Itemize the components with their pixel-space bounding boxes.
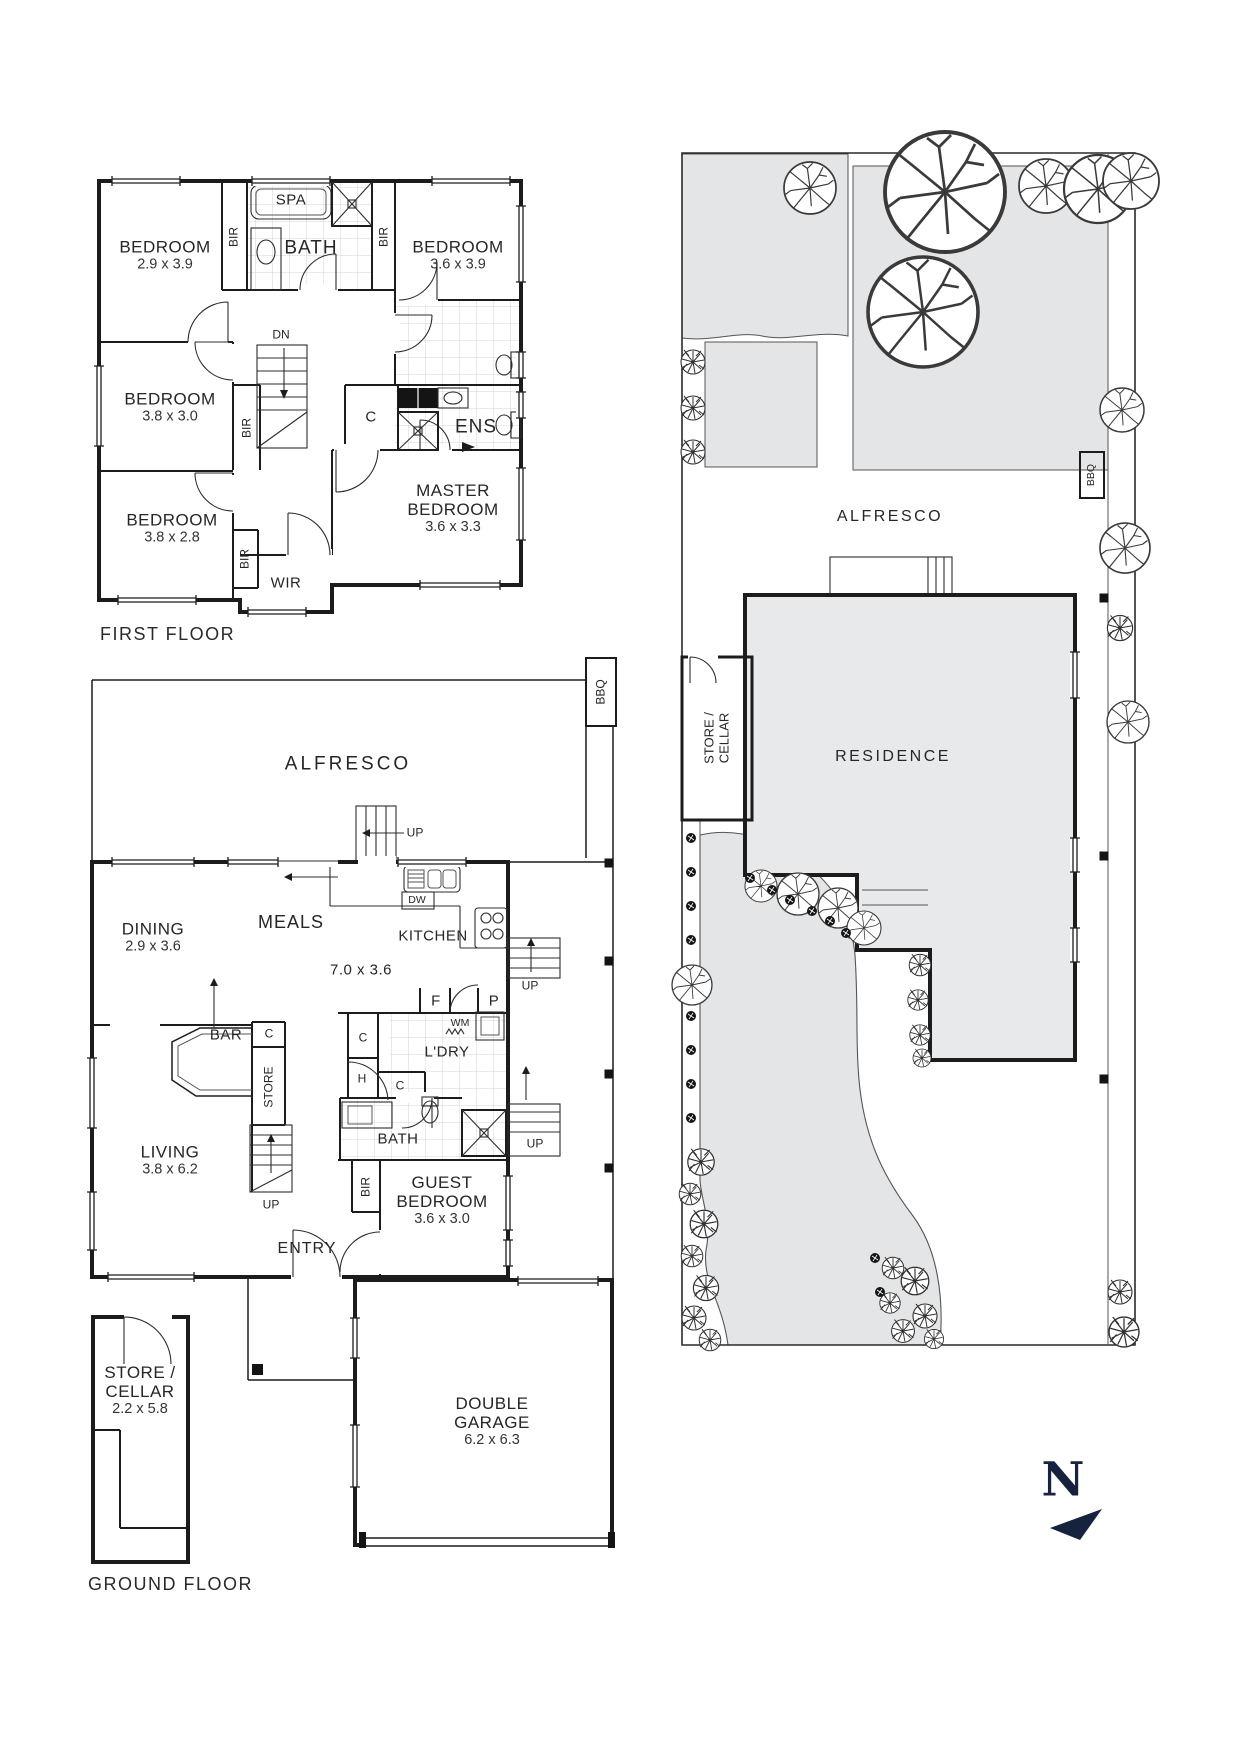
label-gf-entry: ENTRY (278, 1240, 337, 1258)
label-site-alfresco: ALFRESCO (837, 508, 943, 526)
label-gf-kitchen: KITCHEN (398, 929, 467, 946)
label-gf-alfresco: ALFRESCO (285, 753, 411, 774)
label-ff-closet: C (365, 410, 376, 427)
label-ff-wir: WIR (271, 576, 302, 593)
label-gf-bbq: BBQ (594, 679, 607, 704)
label-ff-master: MASTER BEDROOM 3.6 x 3.3 (407, 481, 498, 535)
label-ff-bath: BATH (284, 237, 337, 258)
label-gf-guest: GUEST BEDROOM 3.6 x 3.0 (396, 1173, 487, 1227)
label-gf-garage: DOUBLE GARAGE 6.2 x 6.3 (454, 1394, 530, 1448)
label-gf-wm: WM (451, 1018, 470, 1030)
label-gf-up-stairs: UP (263, 1198, 280, 1211)
label-ff-bedroom4: BEDROOM 3.8 x 2.8 (126, 510, 217, 545)
first-floor-title: FIRST FLOOR (100, 624, 235, 644)
label-gf-up-alfresco: UP (407, 826, 424, 839)
north-label: N (1042, 1453, 1085, 1508)
label-gf-dw: DW (408, 895, 426, 907)
label-gf-meals: MEALS (258, 912, 324, 932)
label-gf-bath: BATH (378, 1132, 419, 1149)
label-ff-bir-4: BIR (238, 549, 251, 569)
label-gf-closet-1: C (359, 1031, 368, 1044)
north-arrow-icon (1050, 1509, 1102, 1540)
label-gf-pantry: P (489, 994, 500, 1011)
label-ff-spa: SPA (276, 193, 306, 210)
label-gf-hw: H (358, 1072, 367, 1085)
label-gf-up-side1: UP (522, 979, 539, 992)
label-site-store-cellar: STORE / CELLAR (702, 712, 731, 764)
label-gf-living: LIVING 3.8 x 6.2 (141, 1142, 200, 1177)
label-ff-bir-3: BIR (240, 418, 253, 438)
label-gf-store-cellar: STORE / CELLAR 2.2 x 5.8 (104, 1363, 175, 1417)
label-ff-dn: DN (272, 328, 289, 341)
label-site-bbq: BBQ (1086, 464, 1098, 486)
label-ff-bir-2: BIR (377, 227, 390, 247)
label-ff-bedroom2: BEDROOM 3.6 x 3.9 (412, 237, 503, 272)
label-ff-bir-1: BIR (227, 227, 240, 247)
label-site-residence: RESIDENCE (835, 748, 951, 766)
label-ff-bedroom1: BEDROOM 2.9 x 3.9 (119, 237, 210, 272)
label-gf-store: STORE (262, 1066, 275, 1107)
label-gf-laundry: L'DRY (424, 1045, 469, 1062)
label-gf-closet-2: C (396, 1079, 405, 1092)
label-gf-closet-bar: C (265, 1027, 274, 1040)
label-gf-bar: BAR (210, 1028, 242, 1045)
label-ff-ens: ENS (455, 416, 497, 437)
label-gf-fridge: F (431, 994, 441, 1011)
label-gf-dining: DINING 2.9 x 3.6 (122, 919, 185, 954)
ground-floor-title: GROUND FLOOR (88, 1574, 253, 1594)
label-gf-bir: BIR (359, 1177, 372, 1197)
label-ff-bedroom3: BEDROOM 3.8 x 3.0 (124, 389, 215, 424)
floorplan-page: BEDROOM 2.9 x 3.9 SPA BATH BIR BIR BEDRO… (0, 0, 1240, 1754)
label-gf-kitchen-dims: 7.0 x 3.6 (330, 963, 392, 980)
label-gf-up-side2: UP (527, 1137, 544, 1150)
